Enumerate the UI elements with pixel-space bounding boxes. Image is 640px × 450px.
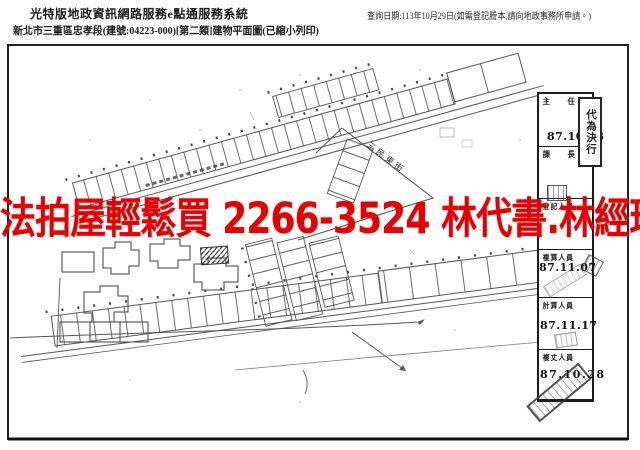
- parcel-strip-upper: [54, 21, 546, 224]
- approval-role-label: 複丈人員: [539, 350, 588, 363]
- system-title: 光特版地政資訊網路服務e點通服務系統: [30, 5, 248, 22]
- ad-banner-text: 法拍屋輕鬆買 2266-3524 林代書.林經理: [0, 197, 640, 242]
- approval-table: 主 任 87.10.23 課 長 登記人員 複算人員 87.11.07 計算人員…: [537, 92, 594, 402]
- approval-date: 87.11.17: [540, 319, 598, 332]
- parcel-strip-wedge: [327, 139, 373, 203]
- query-date: 查詢日期:113年10月29日(如需登記謄本,請向地政事務所申請。): [367, 9, 591, 22]
- approval-role-label: 計算人員: [539, 298, 588, 311]
- document-title: 新北市三重區忠孝段(建號:04223-000)[第二類]建物平面圖(已縮小列印): [13, 23, 319, 38]
- ad-banner: 法拍屋輕鬆買 2266-3524 林代書.林經理: [0, 197, 640, 239]
- decision-stamp: 代為決行: [578, 97, 602, 167]
- subject-parcel-hatched: [200, 246, 228, 265]
- road-name-label: 三民東街: [365, 140, 408, 176]
